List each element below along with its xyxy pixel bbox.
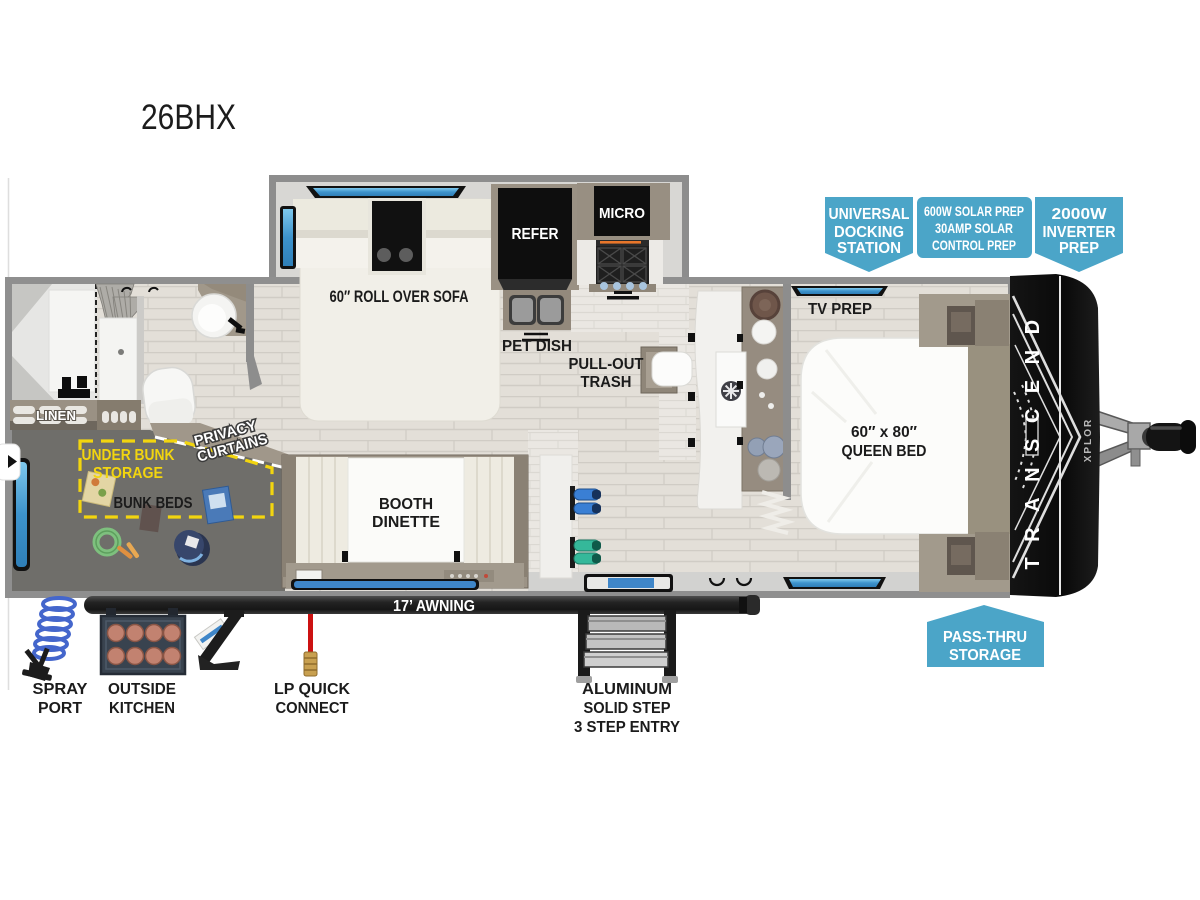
svg-text:BOOTH: BOOTH <box>379 496 433 513</box>
svg-text:TRANSCEND: TRANSCEND <box>1022 304 1044 569</box>
svg-text:UNIVERSAL: UNIVERSAL <box>829 206 910 223</box>
svg-text:26BHX: 26BHX <box>141 98 236 137</box>
svg-text:SOLID STEP: SOLID STEP <box>584 700 671 717</box>
svg-text:INVERTER: INVERTER <box>1043 224 1116 241</box>
svg-text:ALUMINUM: ALUMINUM <box>582 681 672 698</box>
svg-text:TV PREP: TV PREP <box>808 301 872 318</box>
svg-text:KITCHEN: KITCHEN <box>109 700 175 717</box>
svg-text:MICRO: MICRO <box>599 205 645 222</box>
svg-text:STORAGE: STORAGE <box>949 647 1021 664</box>
svg-text:17’ AWNING: 17’ AWNING <box>393 598 475 615</box>
svg-text:STATION: STATION <box>837 240 901 257</box>
svg-text:3 STEP ENTRY: 3 STEP ENTRY <box>574 719 680 736</box>
svg-text:PULL-OUT: PULL-OUT <box>569 356 644 373</box>
svg-text:600W SOLAR PREP: 600W SOLAR PREP <box>924 204 1024 219</box>
svg-text:UNDER BUNK: UNDER BUNK <box>82 447 176 464</box>
svg-text:SPRAY: SPRAY <box>33 681 88 698</box>
svg-text:60″ ROLL OVER SOFA: 60″ ROLL OVER SOFA <box>330 287 469 306</box>
svg-text:STORAGE: STORAGE <box>93 465 163 482</box>
svg-text:XPLOR: XPLOR <box>1083 418 1094 462</box>
svg-text:DOCKING: DOCKING <box>834 224 904 241</box>
svg-text:REFER: REFER <box>512 226 559 243</box>
svg-text:TRASH: TRASH <box>581 374 632 391</box>
svg-text:PASS-THRU: PASS-THRU <box>943 629 1027 646</box>
svg-text:2000W: 2000W <box>1052 206 1108 223</box>
svg-text:LP QUICK: LP QUICK <box>274 681 350 698</box>
svg-text:OUTSIDE: OUTSIDE <box>108 681 176 698</box>
svg-text:CONNECT: CONNECT <box>276 700 349 717</box>
svg-text:CONTROL PREP: CONTROL PREP <box>932 238 1016 253</box>
svg-text:PREP: PREP <box>1059 240 1099 257</box>
svg-text:PET DISH: PET DISH <box>502 338 572 355</box>
svg-text:BUNK BEDS: BUNK BEDS <box>114 495 193 512</box>
svg-text:LINEN: LINEN <box>36 408 76 423</box>
svg-text:PORT: PORT <box>38 700 82 717</box>
svg-text:30AMP SOLAR: 30AMP SOLAR <box>935 221 1013 236</box>
svg-text:60″ x 80″: 60″ x 80″ <box>851 424 918 441</box>
svg-text:DINETTE: DINETTE <box>372 514 440 531</box>
svg-text:QUEEN BED: QUEEN BED <box>842 443 927 460</box>
